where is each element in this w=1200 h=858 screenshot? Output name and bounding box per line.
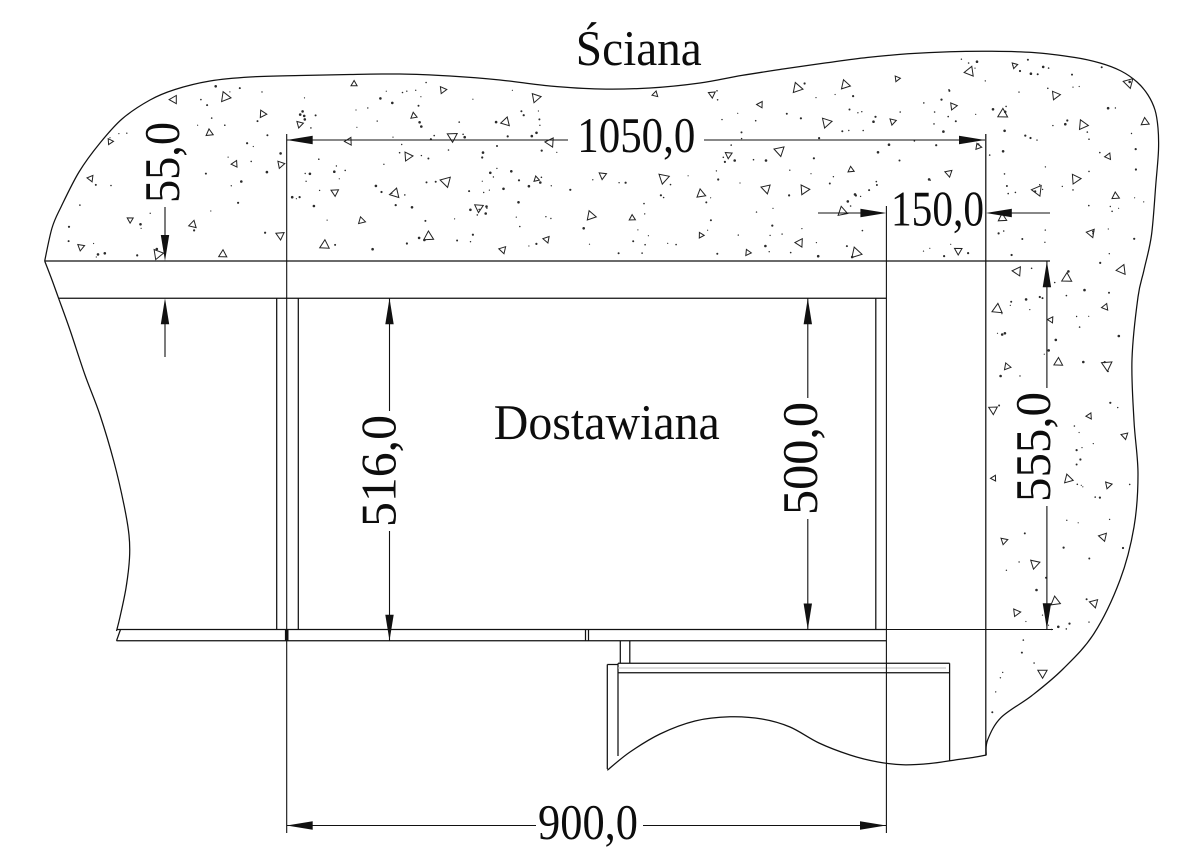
svg-text:500,0: 500,0	[772, 402, 828, 515]
svg-text:Ściana: Ściana	[576, 20, 702, 76]
svg-text:516,0: 516,0	[351, 415, 407, 527]
svg-text:1050,0: 1050,0	[577, 107, 695, 163]
svg-text:Dostawiana: Dostawiana	[494, 394, 720, 450]
svg-text:900,0: 900,0	[538, 794, 638, 850]
svg-text:150,0: 150,0	[891, 181, 984, 237]
svg-text:555,0: 555,0	[1005, 392, 1061, 502]
svg-text:55,0: 55,0	[134, 122, 190, 203]
